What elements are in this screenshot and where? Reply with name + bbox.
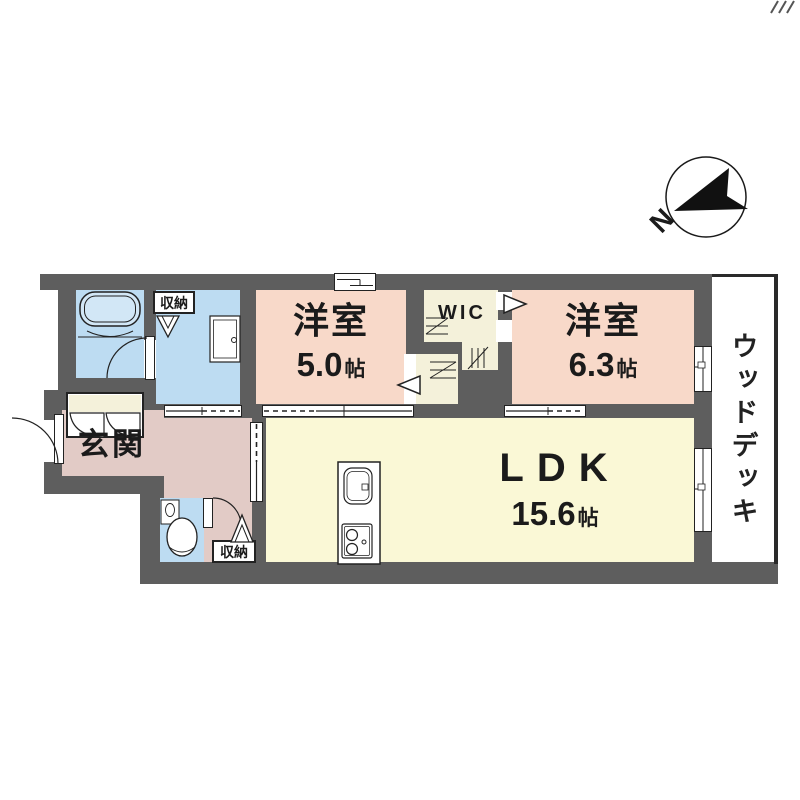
kitchen-counter bbox=[338, 462, 380, 564]
closet-shelf-lines bbox=[430, 362, 456, 378]
entry-door-arc bbox=[12, 418, 58, 464]
bedroom1-name: 洋室 bbox=[256, 301, 406, 341]
folding-door-washroom-storage bbox=[157, 316, 179, 337]
corner-tick-marks bbox=[771, 1, 794, 13]
wic-label: WIC bbox=[424, 302, 500, 324]
toilet-door-arc bbox=[213, 498, 241, 526]
toilet-icon bbox=[161, 500, 197, 556]
bedroom2-size: 6.3帖 bbox=[512, 347, 694, 383]
bathroom-door-arc bbox=[107, 338, 147, 378]
bedroom2-name: 洋室 bbox=[512, 301, 694, 341]
wood-deck-label: ウッドデッキ bbox=[716, 300, 770, 562]
kitchen-sink-icon bbox=[344, 468, 372, 504]
vanity-sink-icon bbox=[210, 316, 240, 362]
bathtub-icon bbox=[78, 292, 142, 337]
stove-icon bbox=[342, 524, 372, 558]
bedroom1-size: 5.0帖 bbox=[256, 347, 406, 383]
floor-plan: 収納 収納 bbox=[0, 0, 800, 800]
window-latch bbox=[698, 484, 705, 490]
ldk-size: 15.6帖 bbox=[452, 496, 658, 532]
window-bedroom2-lines bbox=[695, 347, 703, 391]
ldk-name: LDK bbox=[452, 446, 658, 490]
ldk-label: LDK 15.6帖 bbox=[452, 446, 658, 532]
bedroom2-label: 洋室 6.3帖 bbox=[512, 301, 694, 383]
bedroom1-label: 洋室 5.0帖 bbox=[256, 301, 406, 383]
fixtures-overlay bbox=[0, 0, 800, 800]
entrance-label: 玄関 bbox=[62, 428, 162, 462]
window-latch bbox=[698, 362, 705, 368]
folding-door-hall-storage bbox=[231, 515, 253, 542]
wic-hatch-lines bbox=[468, 347, 488, 369]
window-top-lines bbox=[337, 280, 373, 286]
